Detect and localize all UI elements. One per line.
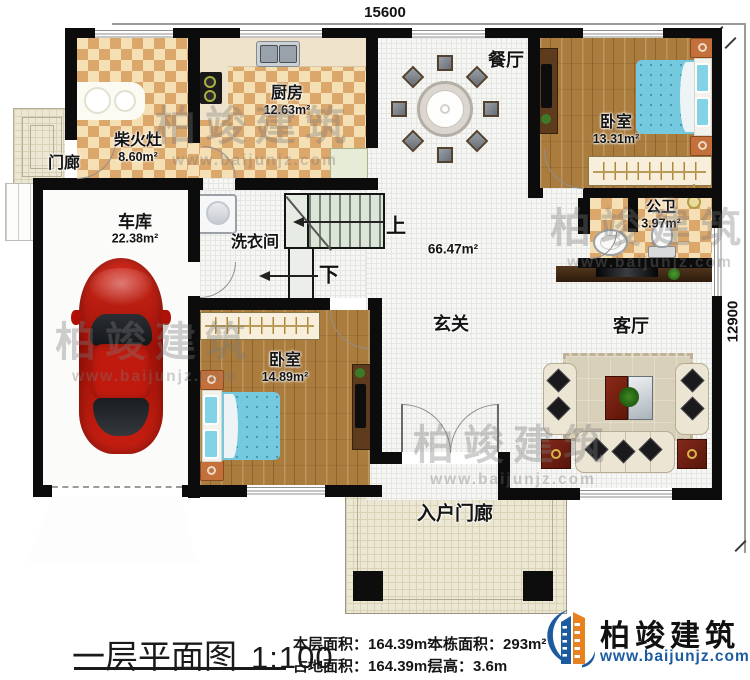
pillow — [695, 97, 710, 127]
up-arrow-head — [293, 217, 304, 227]
wall — [235, 178, 378, 190]
dining-chair — [437, 55, 453, 71]
stats-column-1: 本层面积：164.39m² 占地面积：164.39m² — [293, 634, 432, 678]
plan-title: 一层平面图 — [72, 630, 237, 678]
stats-column-2: 本栋面积：293m² 层高：3.6m — [428, 634, 546, 678]
up-arrow-line — [304, 221, 384, 223]
stove-icon — [200, 72, 222, 104]
tv-icon — [596, 268, 658, 277]
stat-label: 层高： — [428, 658, 473, 675]
wall — [182, 485, 247, 497]
wall — [188, 296, 200, 498]
dimension-line-right — [744, 23, 746, 553]
stat-value: 164.39m² — [368, 636, 432, 653]
hall-area-label: 66.47m² — [428, 241, 478, 256]
stair-run-down — [288, 249, 314, 298]
stove-pot-icon — [114, 90, 136, 112]
monitor-icon — [355, 384, 366, 428]
stat-value: 164.39m² — [368, 658, 432, 675]
plant-icon — [355, 368, 365, 378]
down-arrow-line — [270, 275, 318, 277]
nightstand-knob — [207, 466, 216, 475]
porch-column — [523, 571, 553, 601]
wardrobe — [588, 156, 712, 186]
floor-plan-page: 15600 12900 — [0, 0, 750, 680]
wall — [33, 485, 52, 497]
room-label-gongwei: 公卫3.97m² — [641, 200, 681, 231]
garage-door-line — [52, 486, 182, 488]
wood-stove-counter — [77, 82, 145, 120]
nightstand-knob — [698, 141, 707, 150]
wall — [528, 188, 543, 198]
dimension-tick — [724, 37, 736, 49]
wall — [628, 198, 638, 232]
stat-label: 本层面积： — [293, 636, 368, 653]
window — [583, 28, 663, 38]
wall — [528, 38, 540, 188]
car-hood-shine — [87, 268, 155, 306]
wall — [325, 485, 382, 497]
entry-door-threshold — [402, 452, 498, 464]
washing-machine-icon — [197, 194, 237, 234]
car-mirror — [161, 310, 171, 325]
window — [95, 28, 173, 38]
wardrobe — [200, 312, 320, 340]
washer-drum — [206, 201, 230, 225]
stat-label: 本栋面积： — [428, 636, 503, 653]
building-logo-icon — [542, 606, 598, 668]
dining-chair — [391, 101, 407, 117]
window — [412, 28, 485, 38]
stat-value: 293m² — [503, 636, 546, 653]
rail-line — [205, 325, 314, 327]
bed-sheet-fold — [224, 394, 238, 458]
plant-icon — [668, 268, 680, 280]
k-sink-icon — [256, 41, 300, 67]
brand-logo-icon — [542, 606, 598, 668]
stat-value: 3.6m — [473, 658, 507, 675]
window — [240, 28, 322, 38]
nightstand — [200, 370, 224, 390]
wall — [188, 38, 200, 143]
pillow — [695, 63, 710, 93]
door-leaf — [497, 404, 499, 452]
stove-pot-icon — [84, 87, 111, 114]
wall — [43, 178, 200, 190]
window — [247, 485, 325, 497]
wall — [188, 298, 330, 310]
window — [580, 488, 672, 500]
car-windshield — [90, 314, 152, 346]
door-leaf — [401, 404, 403, 452]
porch-column — [353, 571, 383, 601]
wall — [33, 178, 43, 497]
car-mirror — [71, 310, 81, 325]
doorway-floor — [188, 143, 200, 178]
brand-site: www.baijunjz.com — [600, 648, 748, 666]
doorway-floor — [203, 178, 235, 190]
rail-line — [593, 171, 706, 173]
burner — [204, 90, 216, 102]
nightstand-knob — [698, 43, 707, 52]
room-label-keting: 客厅 — [613, 316, 649, 336]
room-label-chaihuozao: 柴火灶8.60m² — [114, 132, 162, 164]
doorway-floor — [188, 262, 200, 296]
room-label-cheku: 车库22.38m² — [112, 212, 159, 245]
dimension-right-value: 12900 — [725, 292, 742, 352]
dimension-top-value: 15600 — [345, 4, 425, 21]
window — [712, 228, 722, 296]
room-label-xuanguan: 玄关 — [433, 314, 469, 334]
dining-chair — [437, 147, 453, 163]
pillow — [203, 395, 219, 425]
side-porch — [13, 108, 71, 186]
wall — [370, 298, 382, 464]
wall — [366, 28, 378, 148]
side-table-ring — [551, 449, 561, 459]
dining-chair — [483, 101, 499, 117]
stairs-up-label: 上 — [386, 210, 406, 239]
wall — [370, 452, 402, 464]
nightstand-knob — [207, 375, 216, 384]
room-label-woshi1: 卧室13.31m² — [593, 114, 640, 146]
room-label-xiyijian: 洗衣间 — [231, 234, 279, 252]
wall — [188, 190, 200, 262]
pillow — [203, 429, 219, 459]
dimension-line-top — [112, 23, 744, 25]
side-table — [541, 439, 571, 469]
wall — [578, 258, 722, 268]
title-underline — [74, 667, 286, 670]
room-label-ruhumenlang: 入户门廊 — [417, 503, 493, 524]
stairs-down-label: 下 — [319, 259, 339, 288]
driveway — [26, 497, 198, 563]
plant-icon — [541, 114, 551, 124]
room-label-menlang: 门廊 — [48, 155, 80, 173]
sink-basin — [260, 45, 278, 63]
car-roof — [91, 344, 151, 400]
sink-basin — [279, 45, 297, 63]
side-table — [677, 439, 707, 469]
wall — [578, 198, 590, 234]
kitchen-island — [330, 148, 368, 180]
down-arrow-head — [259, 271, 270, 281]
stat-label: 占地面积： — [293, 658, 368, 675]
side-table-ring — [687, 449, 697, 459]
monitor-icon — [541, 64, 552, 108]
table-plant-icon — [619, 387, 639, 407]
room-label-chufang: 厨房12.63m² — [264, 85, 311, 117]
wall — [583, 188, 722, 198]
burner — [204, 76, 216, 88]
room-label-woshi2: 卧室14.89m² — [262, 352, 309, 384]
table-center — [440, 104, 450, 114]
room-label-canting: 餐厅 — [488, 50, 524, 70]
wall — [65, 28, 77, 140]
nightstand — [200, 461, 224, 481]
